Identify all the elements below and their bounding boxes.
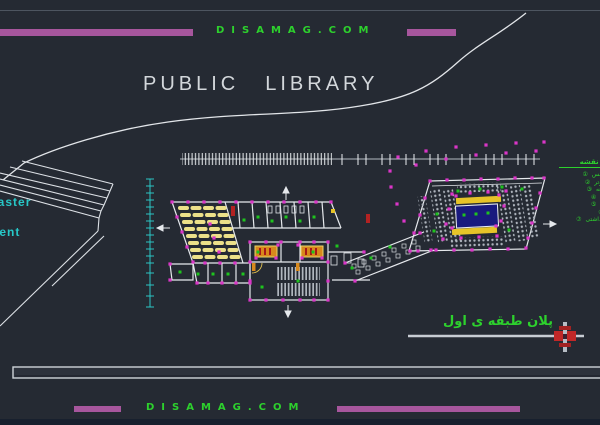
dimension-line-top xyxy=(180,153,540,165)
legend-item: آبدارخانه ⑥ xyxy=(549,209,600,217)
dimension-line-left xyxy=(146,179,154,307)
legend-item: سالن کنفرانس ① xyxy=(549,171,600,179)
bottom-edge-strip xyxy=(0,419,600,425)
legend-item: سالن مطالعه ③ xyxy=(549,186,600,194)
down-arrow-icon xyxy=(285,305,291,317)
legend-item: سالن کامپیوتر ② xyxy=(549,179,600,187)
left-arrow-icon xyxy=(157,225,170,231)
legend-item: سرویس بهداشتی ⑦ xyxy=(549,216,600,224)
up-arrow-icon xyxy=(283,187,289,200)
legend-item: ورودی ⑧ xyxy=(549,224,600,232)
legend: راهنمای نقشه سالن کنفرانس ① سالن کامپیوت… xyxy=(549,158,600,231)
title-block-frame xyxy=(13,367,600,378)
legend-item: مخزن کتاب ④ xyxy=(549,194,600,202)
bottom-right-purple-bar xyxy=(337,406,520,412)
site-name-bottom: DISAMAG.COM xyxy=(146,402,305,413)
road-hatch-lines xyxy=(0,161,113,326)
cad-canvas xyxy=(0,0,600,425)
caption-floor-plan: پلان طبقه ی اول xyxy=(408,314,588,329)
legend-title: راهنمای نقشه xyxy=(559,158,600,168)
cad-screenshot: DISAMAG.COM PUBLIC LIBRARY master studen… xyxy=(0,0,600,425)
legend-item: بخش اداری ⑤ xyxy=(549,201,600,209)
bottom-left-purple-bar xyxy=(74,406,121,412)
